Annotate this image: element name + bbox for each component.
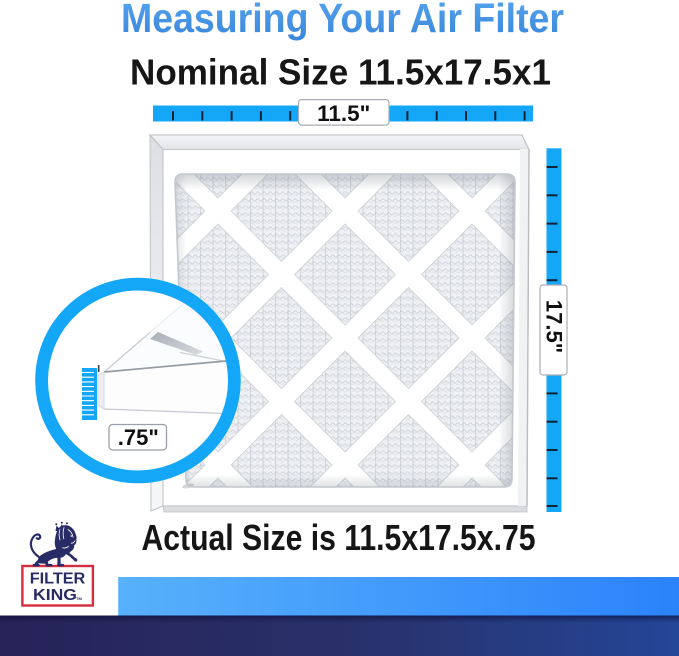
svg-text:Measuring Your Air Filter: Measuring Your Air Filter (121, 0, 564, 41)
svg-text:Actual Size is 11.5x17.5x.75: Actual Size is 11.5x17.5x.75 (142, 517, 536, 558)
svg-text:FILTER: FILTER (30, 571, 86, 588)
svg-text:KING: KING (33, 587, 77, 604)
svg-text:11.5": 11.5" (317, 101, 370, 126)
svg-text:TM: TM (76, 596, 82, 601)
svg-text:17.5": 17.5" (542, 300, 567, 353)
svg-text:.75": .75" (118, 425, 159, 450)
svg-text:Nominal Size 11.5x17.5x1: Nominal Size 11.5x17.5x1 (130, 52, 551, 93)
